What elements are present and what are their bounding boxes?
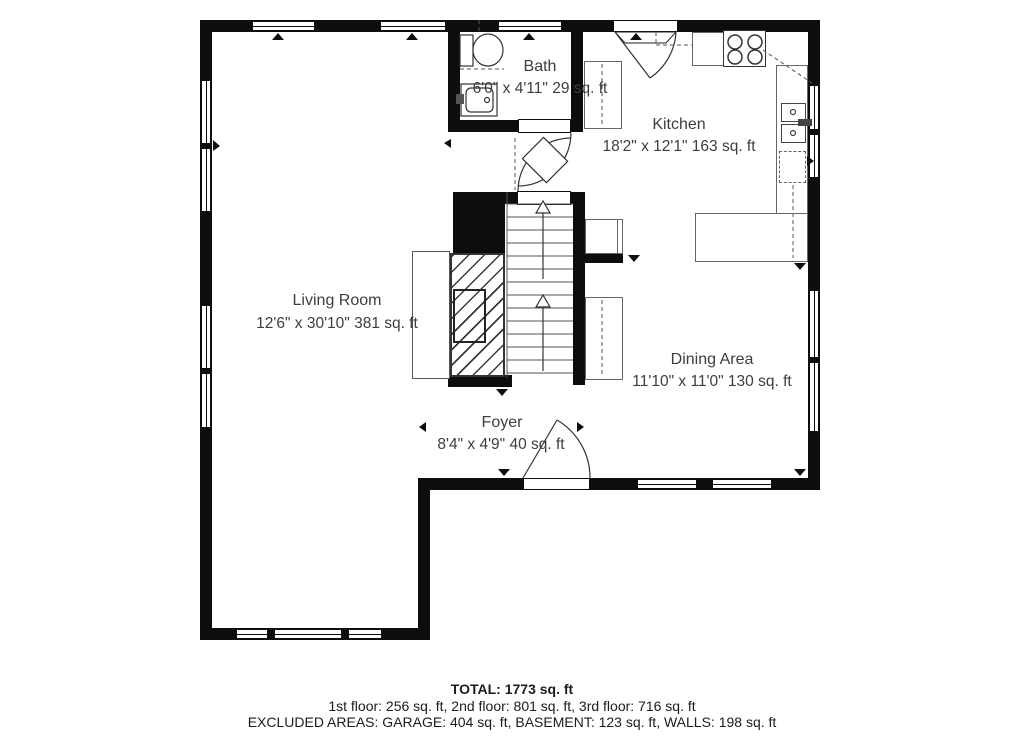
room-dims-dining-area: 11'10" x 11'0" 130 sq. ft [632,373,791,391]
summary-total: TOTAL: 1773 sq. ft [451,681,573,697]
toilet [460,34,503,66]
room-dims-foyer: 8'4" x 4'9" 40 sq. ft [437,436,564,454]
door-leaf-panel [522,137,567,182]
room-label-foyer: Foyer [482,414,523,432]
summary-excluded: EXCLUDED AREAS: GARAGE: 404 sq. ft, BASE… [248,714,777,730]
plan-markers [213,33,814,476]
stove-burners [728,35,762,64]
sink-drains [791,110,796,136]
room-label-kitchen: Kitchen [652,116,705,134]
door-sill [615,32,676,43]
summary-floors: 1st floor: 256 sq. ft, 2nd floor: 801 sq… [328,698,695,714]
room-dims-bath: 6'0" x 4'11" 29 sq. ft [473,80,608,98]
room-dims-kitchen: 18'2" x 12'1" 163 sq. ft [602,138,755,156]
room-label-living-room: Living Room [293,292,382,310]
floor-plan-canvas: Bath 6'0" x 4'11" 29 sq. ft Kitchen 18'2… [0,0,1024,738]
dashed-cabinet-lines [460,20,812,377]
plan-linework [0,0,1024,738]
room-label-bath: Bath [524,58,557,76]
staircase [507,192,573,378]
room-dims-living-room: 12'6" x 30'10" 381 sq. ft [256,315,418,333]
stairs-up-arrow [536,201,550,371]
room-label-dining-area: Dining Area [671,351,754,369]
